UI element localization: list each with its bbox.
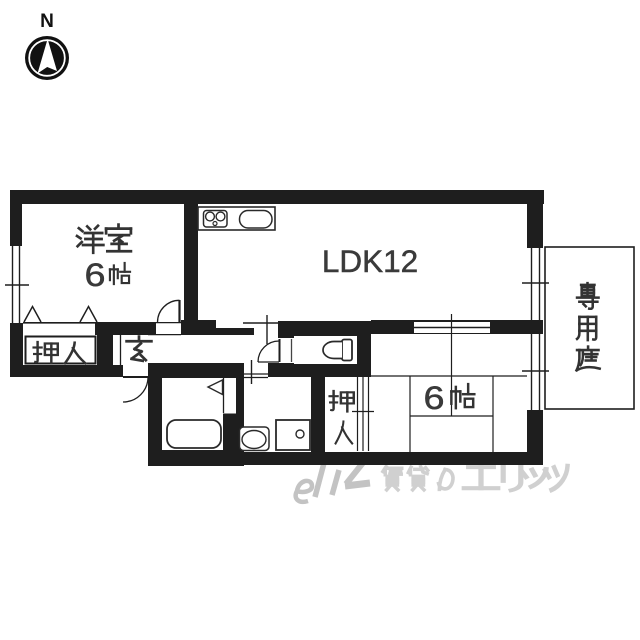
svg-text:6: 6 (423, 381, 444, 417)
svg-text:6: 6 (84, 258, 105, 294)
svg-text:N: N (40, 11, 54, 32)
svg-text:LDK12: LDK12 (322, 243, 418, 279)
